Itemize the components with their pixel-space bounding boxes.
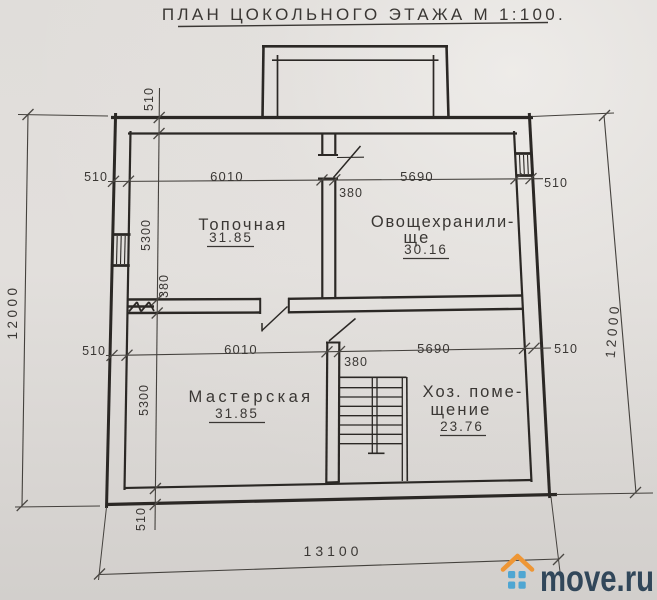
svg-text:5300: 5300 [137,384,151,416]
svg-text:Мастерская: Мастерская [188,388,313,406]
svg-text:510: 510 [134,507,148,531]
svg-text:30.16: 30.16 [404,242,448,257]
svg-text:23.76: 23.76 [440,419,484,434]
svg-text:510: 510 [84,170,108,184]
svg-text:13100: 13100 [304,543,363,559]
svg-text:510: 510 [82,344,106,358]
svg-text:Овощехранили-: Овощехранили- [371,213,515,231]
svg-text:ПЛАН ЦОКОЛЬНОГО ЭТАЖА М 1:100.: ПЛАН ЦОКОЛЬНОГО ЭТАЖА М 1:100. [162,5,566,24]
svg-text:щение: щение [430,401,491,419]
svg-text:510: 510 [544,176,568,190]
svg-text:380: 380 [344,355,368,369]
svg-text:6010: 6010 [210,169,244,184]
svg-text:510: 510 [554,342,578,356]
svg-text:5690: 5690 [417,341,451,356]
svg-text:5300: 5300 [139,219,153,251]
svg-text:31.85: 31.85 [215,406,259,421]
svg-text:510: 510 [142,87,156,111]
svg-text:move.ru: move.ru [540,558,654,599]
svg-text:Хоз. поме-: Хоз. поме- [423,383,524,401]
svg-text:5690: 5690 [400,169,434,184]
svg-text:6010: 6010 [224,342,258,357]
svg-text:380: 380 [157,274,171,298]
svg-text:12000: 12000 [5,284,20,339]
svg-text:31.85: 31.85 [209,230,253,245]
svg-text:380: 380 [339,186,363,200]
